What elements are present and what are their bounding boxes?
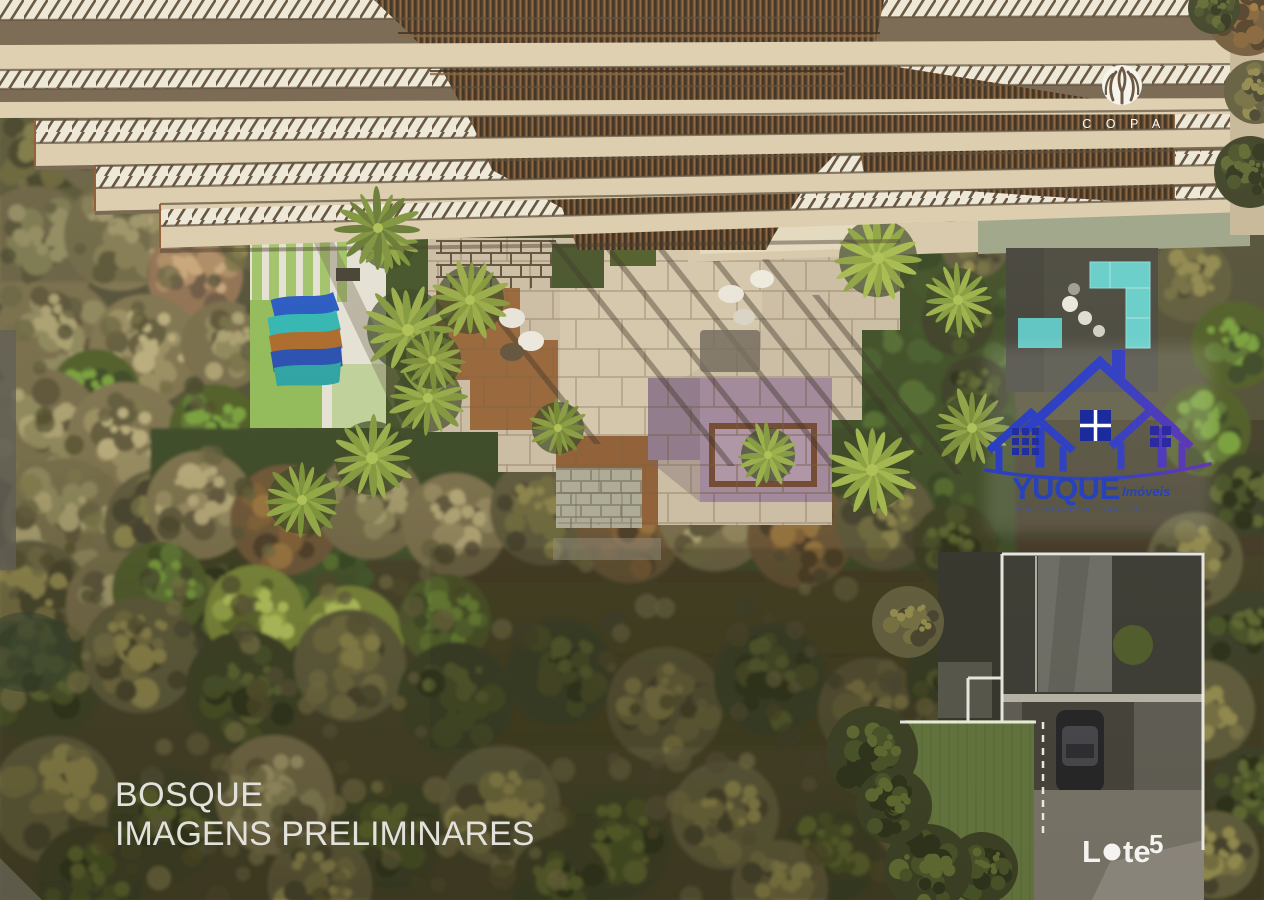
svg-text:5: 5: [1149, 829, 1163, 859]
svg-text:BOSQUE: BOSQUE: [115, 776, 263, 814]
svg-text:IMAGENS PRELIMINARES: IMAGENS PRELIMINARES: [115, 815, 534, 853]
svg-text:te: te: [1123, 834, 1151, 869]
svg-text:C O P A: C O P A: [1082, 117, 1165, 131]
svg-text:Imóveis: Imóveis: [1122, 484, 1170, 499]
svg-text:YUQUE: YUQUE: [1012, 471, 1120, 506]
svg-text:Rua Frei Caneca, 1246 - SP: Rua Frei Caneca, 1246 - SP: [1016, 505, 1141, 514]
svg-text:L: L: [1082, 834, 1101, 869]
